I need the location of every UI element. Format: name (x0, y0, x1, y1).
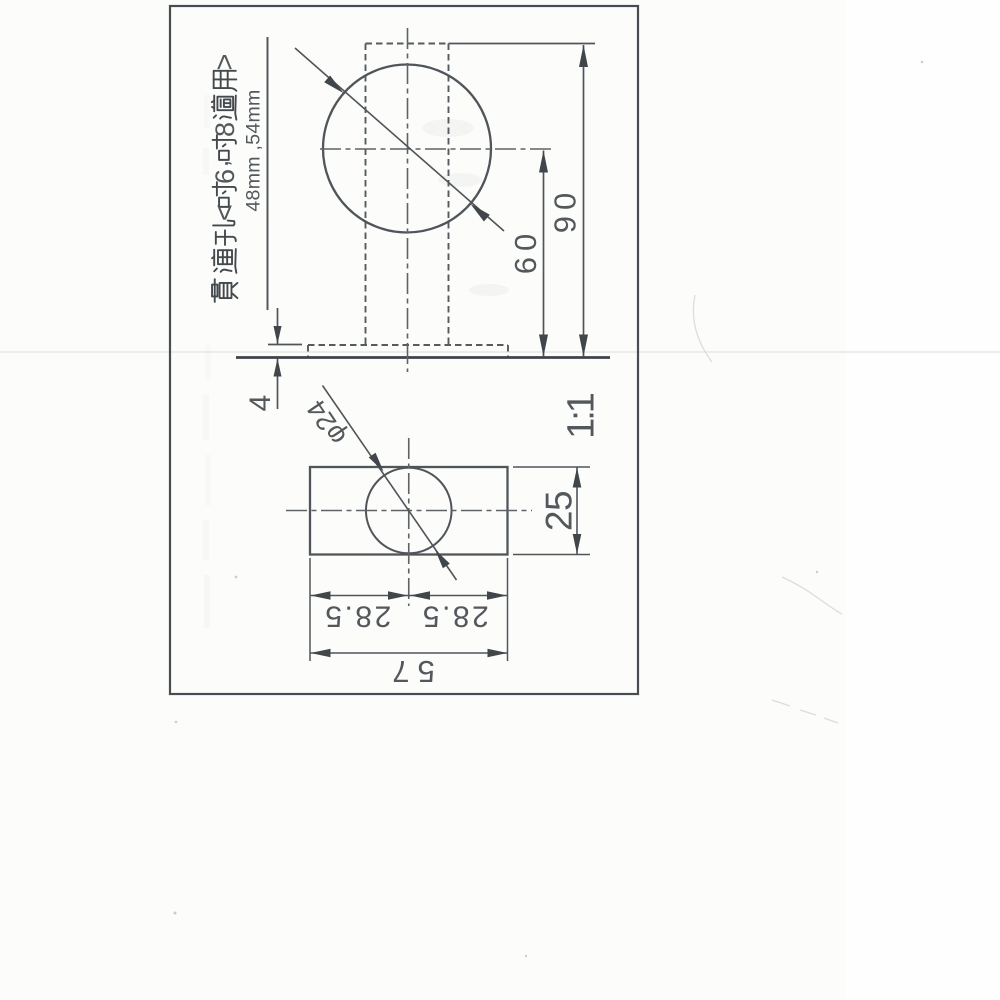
svg-text:4: 4 (244, 395, 277, 412)
svg-text:28.5: 28.5 (420, 600, 488, 633)
svg-text:,: , (204, 160, 234, 168)
svg-text:1:1: 1:1 (561, 393, 603, 439)
svg-text:8: 8 (210, 122, 240, 137)
svg-text:6: 6 (210, 169, 240, 184)
svg-text:25: 25 (539, 491, 580, 531)
svg-text:>: > (209, 54, 241, 71)
svg-text:57: 57 (384, 654, 434, 689)
svg-text:60: 60 (508, 228, 543, 274)
svg-text:48mm ,54mm: 48mm ,54mm (243, 89, 265, 211)
svg-text:90: 90 (548, 187, 583, 233)
svg-text:<: < (209, 204, 241, 221)
svg-text:28.5: 28.5 (323, 600, 391, 633)
